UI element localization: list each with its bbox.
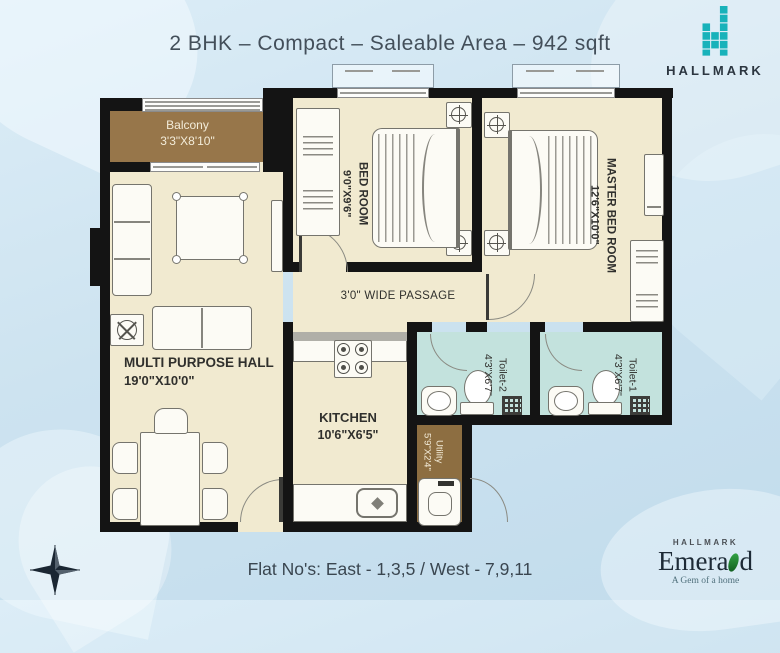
railing-line — [145, 109, 260, 111]
dining-chair — [112, 488, 138, 520]
window-line — [526, 70, 554, 72]
window-line — [345, 70, 373, 72]
utility-door-arc — [470, 478, 508, 522]
wall-segment — [583, 322, 672, 332]
dining-chair — [202, 442, 228, 474]
toilet2-name: Toilet-2 — [496, 358, 508, 392]
washbasin-bowl — [427, 391, 451, 411]
toilet2-dim: 4'3"X6'7" — [482, 354, 494, 396]
master-bedroom-dim: 12'6"X10'0" — [588, 185, 600, 245]
hallmark-logo: HALLMARK — [655, 6, 775, 74]
wall-segment — [407, 415, 672, 425]
wall-segment — [100, 162, 150, 172]
wall-segment — [346, 262, 473, 272]
lamp-icon — [489, 235, 504, 250]
sofa-divider — [114, 258, 150, 260]
utility-dim: 5'9"X2'4" — [421, 433, 432, 471]
emerald-name-pre: Emera — [658, 546, 728, 576]
sofa-divider — [114, 221, 150, 223]
window-line — [520, 92, 612, 94]
window-line — [392, 70, 420, 72]
stove-burner — [337, 343, 350, 356]
emerald-name-post: d — [739, 546, 753, 576]
dining-chair — [202, 488, 228, 520]
toilet1-name: Toilet-1 — [626, 358, 638, 392]
emerald-tagline: A Gem of a home — [633, 576, 778, 586]
wall-segment — [100, 98, 142, 111]
washbasin-bowl — [554, 391, 578, 411]
dining-table — [140, 432, 200, 526]
bed-pillow — [516, 136, 542, 244]
bedroom-name: BED ROOM — [356, 162, 368, 225]
lamp-icon — [489, 117, 504, 132]
hallmark-logo-icon — [702, 6, 728, 56]
wall-segment — [407, 322, 417, 532]
lamp-icon — [451, 107, 466, 122]
washing-machine-drum — [428, 492, 452, 516]
dining-chair — [112, 442, 138, 474]
master-bedroom-door-leaf — [486, 274, 489, 320]
wall-segment — [466, 322, 487, 332]
wardrobe — [296, 108, 340, 236]
sofa-divider — [201, 308, 203, 348]
toilet1-dim: 4'3"X6'7" — [612, 354, 624, 396]
kitchen-dim: 10'6"X6'5" — [318, 428, 379, 442]
balcony-name: Balcony — [166, 118, 209, 132]
wall-segment — [530, 322, 540, 425]
page-title: 2 BHK – Compact – Saleable Area – 942 sq… — [95, 30, 685, 57]
railing-line — [145, 101, 260, 103]
bedroom-dim: 9'0"X9'6" — [340, 170, 352, 217]
table-knob — [172, 255, 181, 264]
utility-name: Utility — [434, 440, 445, 463]
main-entrance-door-leaf — [279, 477, 283, 522]
toilet2-label: Toilet-2 4'3"X6'7" — [481, 336, 509, 414]
kitchen-name: KITCHEN — [319, 410, 377, 425]
wall-segment — [90, 228, 100, 286]
wardrobe-hanger-lines — [303, 190, 333, 210]
compass-icon — [28, 543, 82, 597]
wardrobe-hanger-lines — [636, 250, 658, 266]
wall-segment — [283, 88, 293, 272]
bedroom-label: BED ROOM 9'0"X9'6" — [338, 134, 370, 254]
dining-chair — [154, 408, 188, 434]
dresser-line — [647, 206, 661, 208]
window-projection — [332, 64, 434, 88]
window-line — [153, 166, 203, 168]
stove-burner — [355, 361, 368, 374]
floor-entrance-gap — [238, 522, 283, 532]
master-bedroom-label: MASTER BED ROOM 12'6"X10'0" — [586, 126, 618, 304]
table-knob — [239, 192, 248, 201]
kitchen-label: KITCHEN 10'6"X6'5" — [298, 410, 398, 444]
hall-label: MULTI PURPOSE HALL 19'0"X10'0" — [124, 354, 294, 389]
table-knob — [239, 255, 248, 264]
window-line — [576, 70, 604, 72]
wardrobe-hanger-lines — [303, 136, 333, 156]
emerald-logo: HALLMARK Emerad A Gem of a home — [633, 538, 778, 596]
flat-numbers: Flat No's: East - 1,3,5 / West - 7,9,11 — [90, 558, 690, 581]
master-bedroom-name: MASTER BED ROOM — [604, 158, 616, 273]
wardrobe-hanger-lines — [636, 294, 658, 310]
coffee-table — [176, 196, 244, 260]
window-line — [207, 166, 257, 168]
railing-line — [145, 105, 260, 107]
passage-label: 3'0" WIDE PASSAGE — [322, 289, 474, 304]
hall-name: MULTI PURPOSE HALL — [124, 355, 274, 370]
hallmark-logo-text: HALLMARK — [655, 63, 775, 78]
balcony-dim: 3'3"X8'10" — [160, 134, 214, 148]
stove-burner — [337, 361, 350, 374]
toilet1-label: Toilet-1 4'3"X6'7" — [611, 336, 639, 414]
table-knob — [172, 192, 181, 201]
washing-machine-panel — [438, 481, 454, 486]
sofa-three-seater — [112, 184, 152, 296]
bed-blanket-lines — [378, 134, 418, 242]
window-projection — [512, 64, 620, 88]
page: { "title": "2 BHK – Compact – Saleable A… — [0, 0, 780, 600]
stove-burner — [355, 343, 368, 356]
hall-dim: 19'0"X10'0" — [124, 373, 195, 388]
tv-unit — [271, 200, 283, 272]
wall-segment — [472, 88, 482, 272]
window-line — [340, 92, 426, 94]
utility-label: Utility 5'9"X2'4" — [420, 424, 445, 480]
balcony-label: Balcony 3'3"X8'10" — [120, 118, 255, 149]
bed-pillow — [422, 134, 448, 242]
emerald-project-name: Emerad — [633, 548, 778, 575]
